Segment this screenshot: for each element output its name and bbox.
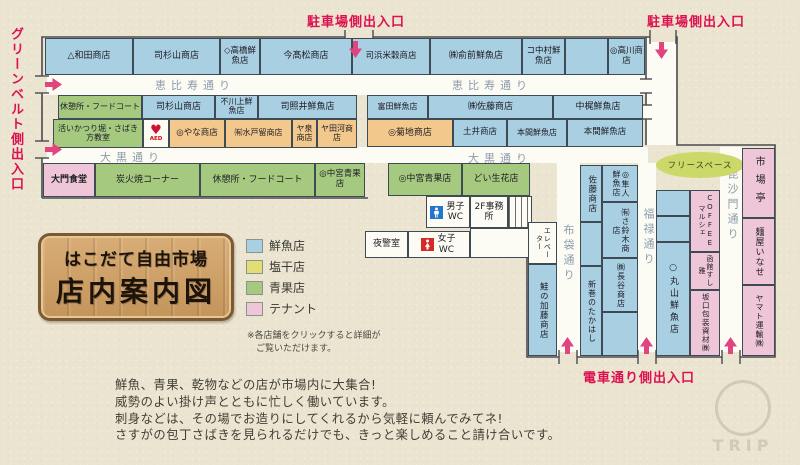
rest-food-court-2[interactable]: 休憩所・フードコート [200, 163, 315, 197]
shop-sato-2[interactable]: 佐藤商店 [580, 165, 602, 222]
arrow-down-parking-left [349, 41, 362, 58]
legend-swatch-tenant [246, 302, 263, 316]
shop-kikuchi[interactable]: ◎菊地商店 [367, 119, 453, 147]
arrow-right-greenbelt-2 [45, 143, 62, 156]
night-guard-room: 夜警室 [365, 231, 408, 258]
aed-label: AED [150, 137, 163, 143]
shop-sugiyama-1[interactable]: 司杉山商店 [133, 38, 220, 75]
shop-tomita[interactable]: 富田鮮魚店 [367, 95, 428, 119]
shop-vacant-1[interactable] [565, 38, 608, 75]
shop-kawakami[interactable]: 不川上鮮魚店 [215, 95, 258, 119]
description-line4: さすがの包丁さばきを見られるだけでも、きっと楽しめること請け合いです。 [115, 427, 560, 444]
white-area [470, 228, 532, 258]
shop-terui[interactable]: 司照井鮮魚店 [258, 95, 357, 119]
legend-item-tenant: テナント [246, 300, 317, 317]
market-description: 鮮魚、青果、乾物などの店が市場内に大集合! 威勢のよい掛け声とともに忙しく働いて… [115, 377, 560, 444]
aed-station: ♥ AED [143, 119, 169, 148]
description-line2: 威勢のよい掛け声とともに忙しく働いています。 [115, 394, 560, 411]
shop-vacant-3[interactable] [602, 312, 638, 356]
shop-maruyama[interactable]: ○丸山鮮魚店 [656, 242, 690, 356]
shop-sakaguchi[interactable]: 坂口包装資材㈱ [690, 290, 720, 356]
shop-takamatsu[interactable]: 今髙松商店 [260, 38, 352, 75]
street-label-ebisu-left: 恵比寿通り [155, 77, 235, 93]
entrance-label-greenbelt: グリーンベルト側出入口 [6, 27, 25, 222]
legend-item-dried-salted: 塩干店 [246, 258, 305, 275]
legend-item-fresh-fish: 鮮魚店 [246, 237, 305, 254]
womens-wc: 女子WC [408, 231, 470, 258]
watermark: TRIP [688, 380, 798, 462]
shop-takahashi[interactable]: ◇高橋鮮魚店 [220, 38, 260, 75]
shop-honma-1[interactable]: 本間鮮魚店 [507, 119, 567, 147]
shop-hase[interactable]: ㈱長谷商店 [602, 258, 638, 312]
mens-wc-label: 男子WC [445, 202, 467, 222]
shop-yamato[interactable]: ヤマト運輸㈱ [742, 285, 775, 356]
legend-swatch-produce [246, 281, 263, 295]
shop-vacant-2[interactable] [580, 222, 602, 266]
shop-doi[interactable]: 土井商店 [453, 119, 507, 147]
free-space-area: フリースペース [656, 152, 744, 178]
market-floor-map: 恵比寿通り 恵比寿通り 大黒通り 大黒通り 布袋通り 福禄通り 毘沙門通り フリ… [0, 0, 800, 465]
arrow-down-parking-right [655, 42, 668, 59]
shop-coffee-marche[interactable]: COFFEEマルシェ [690, 190, 720, 252]
legend-label-fresh-fish: 鮮魚店 [269, 237, 305, 254]
street-label-bishamon: 毘沙門通り [724, 168, 740, 243]
street-label-fukuroku: 福禄通り [640, 208, 656, 268]
shop-wada[interactable]: △和田商店 [45, 38, 133, 75]
watermark-text: TRIP [688, 436, 798, 455]
legend-swatch-dried-salted [246, 260, 263, 274]
arrow-up-tram-1 [561, 337, 574, 354]
shop-vacant-5[interactable] [656, 216, 690, 242]
shop-nakamiya-1[interactable]: ◎中宮青果店 [315, 163, 365, 197]
shop-menya-inase[interactable]: 麺屋いなせ [742, 218, 775, 285]
legend-item-produce: 青果店 [246, 279, 305, 296]
watermark-circle-icon [715, 380, 771, 436]
shop-tagawa[interactable]: ヤ田河商店 [317, 119, 357, 148]
shop-sato-kk[interactable]: ㈱佐藤商店 [428, 95, 553, 119]
elevator: エレベーター [528, 222, 557, 264]
shop-sushi-masa[interactable]: 函館すし雅 [690, 252, 720, 290]
entrance-label-parking-right: 駐車場側出入口 [647, 11, 745, 30]
shop-hamabeikoku[interactable]: 司浜米穀商店 [352, 38, 430, 75]
shop-mae[interactable]: ㈱俞前鮮魚店 [430, 38, 522, 75]
shop-ichibatei[interactable]: 市場亭 [742, 148, 775, 218]
mens-wc-icon [430, 206, 443, 219]
shop-nakamura[interactable]: コ中村鮮魚店 [522, 38, 565, 75]
click-note: ※各店舗をクリックすると詳細が ご覧いただけます。 [247, 330, 381, 356]
arrow-right-greenbelt-1 [45, 78, 62, 91]
shop-izumi[interactable]: ヤ泉商店 [292, 119, 317, 148]
entrance-label-tram: 電車通り側出入口 [583, 367, 695, 386]
shop-aramaki[interactable]: 新巻のたかはし [580, 266, 602, 356]
entrance-label-parking-left: 駐車場側出入口 [307, 11, 405, 30]
street-label-ebisu-right: 恵比寿通り [452, 77, 532, 93]
shop-hayato[interactable]: ◎隼人鮮魚店 [602, 165, 638, 202]
rest-food-court-1[interactable]: 休憩所・フードコート [58, 95, 142, 119]
legend-swatch-fresh-fish [246, 239, 263, 253]
click-note-line2: ご覧いただけます。 [247, 343, 381, 356]
arrow-up-tram-3 [724, 337, 737, 354]
legend-label-produce: 青果店 [269, 279, 305, 296]
legend-label-tenant: テナント [269, 300, 317, 317]
shop-yana[interactable]: ◎やな商店 [169, 119, 225, 148]
map-title-sign: はこだて自由市場 店内案内図 [38, 233, 234, 321]
shop-ikatsuri[interactable]: 活いかつり堀・さばき方教室 [53, 119, 143, 148]
shop-nakamiya-2[interactable]: ◎中宮青果店 [388, 163, 462, 196]
shop-takagawa[interactable]: ◎高川商店 [608, 38, 645, 75]
market-name: はこだて自由市場 [64, 245, 208, 270]
womens-wc-label: 女子WC [436, 234, 458, 254]
map-title: 店内案内図 [56, 270, 216, 310]
mens-wc: 男子WC [426, 196, 470, 228]
shop-honma-2[interactable]: 本間鮮魚店 [567, 119, 643, 147]
arrow-up-tram-2 [640, 337, 653, 354]
womens-wc-icon [421, 238, 434, 251]
description-line3: 刺身などは、その場でお造りにしてくれるから気軽に頼んでみてネ! [115, 411, 560, 428]
office-2f: 2F事務所 [470, 196, 508, 228]
shop-suzuki[interactable]: ㈲さ鈴木商店 [602, 202, 638, 258]
shop-sake-kato[interactable]: 鮭の加藤商店 [528, 264, 557, 356]
shop-vacant-4[interactable] [656, 190, 690, 216]
shop-nakakaji[interactable]: 中梶鮮魚店 [553, 95, 643, 119]
street-label-hotei: 布袋通り [560, 224, 576, 284]
legend-label-dried-salted: 塩干店 [269, 258, 305, 275]
click-note-line1: ※各店舗をクリックすると詳細が [247, 330, 381, 343]
shop-mitodome[interactable]: ㈲水戸留商店 [225, 119, 292, 148]
shop-sumibiyaki[interactable]: 炭火焼コーナー [95, 163, 200, 197]
shop-daimon[interactable]: 大門食堂 [43, 163, 95, 197]
description-line1: 鮮魚、青果、乾物などの店が市場内に大集合! [115, 377, 560, 394]
shop-sugiyama-2[interactable]: 司杉山商店 [142, 95, 215, 119]
shop-doi-seika[interactable]: どい生花店 [462, 163, 530, 196]
